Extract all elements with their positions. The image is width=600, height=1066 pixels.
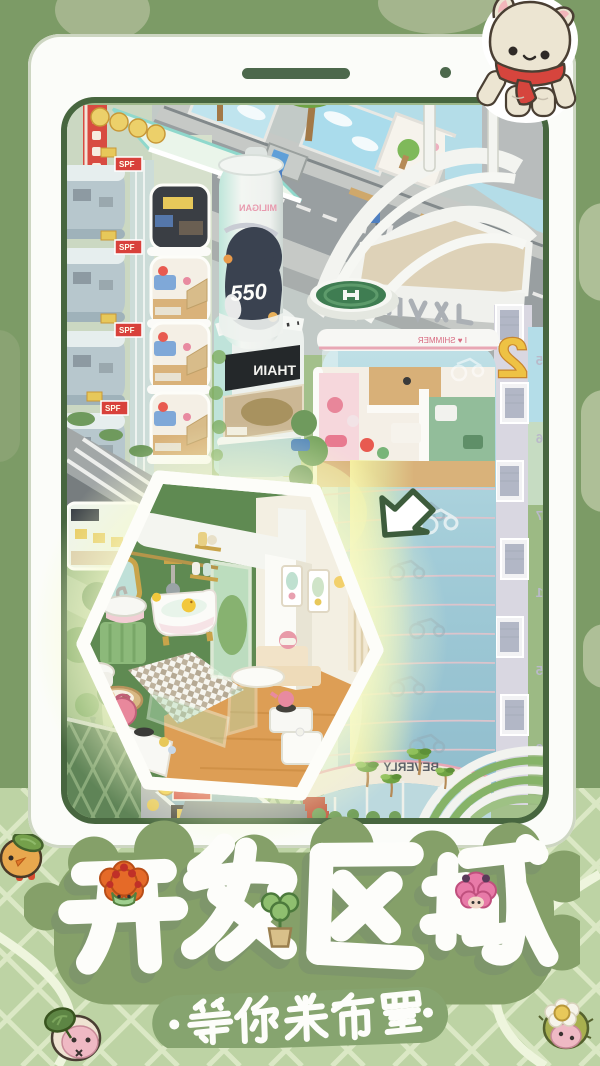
svg-text:THAIN: THAIN xyxy=(253,362,296,378)
svg-text:1: 1 xyxy=(536,585,543,600)
svg-text:5: 5 xyxy=(536,353,543,368)
svg-text:I ♥ SHIMMER: I ♥ SHIMMER xyxy=(418,336,467,345)
svg-text:5: 5 xyxy=(536,663,543,678)
svg-text:7: 7 xyxy=(536,508,543,523)
svg-text:SPF: SPF xyxy=(119,160,135,169)
svg-text:SPF: SPF xyxy=(105,404,121,413)
svg-text:SPF: SPF xyxy=(119,243,135,252)
svg-text:SPF: SPF xyxy=(119,326,135,335)
svg-text:MILIGAN: MILIGAN xyxy=(239,203,277,213)
svg-text:2: 2 xyxy=(497,326,528,389)
svg-text:6: 6 xyxy=(536,431,543,446)
svg-text:550: 550 xyxy=(229,279,268,307)
